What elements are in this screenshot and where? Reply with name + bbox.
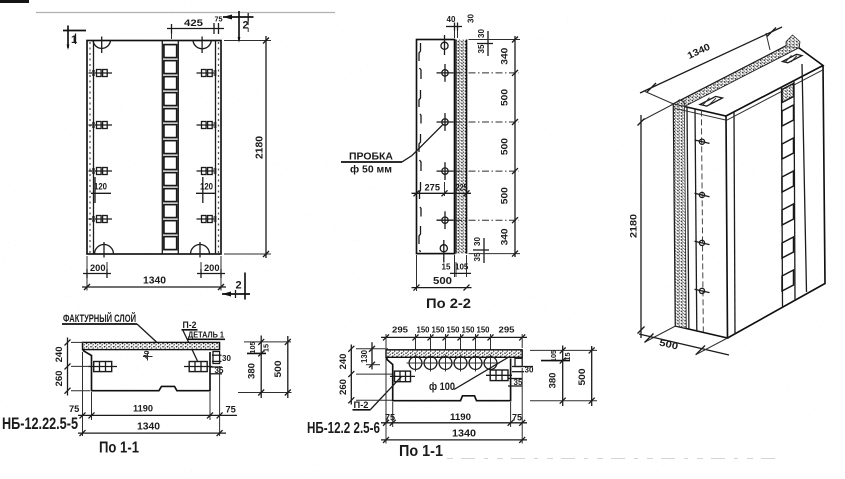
svg-text:150: 150 xyxy=(477,326,491,335)
svg-text:30: 30 xyxy=(222,354,231,363)
svg-text:1340: 1340 xyxy=(452,428,476,440)
svg-text:240: 240 xyxy=(338,354,348,370)
svg-text:30: 30 xyxy=(525,366,534,375)
svg-text:130: 130 xyxy=(359,350,369,363)
svg-text:120: 120 xyxy=(94,182,107,192)
svg-text:260: 260 xyxy=(54,371,64,387)
svg-text:НБ-12.2 2.5-6: НБ-12.2 2.5-6 xyxy=(307,420,380,437)
svg-text:295: 295 xyxy=(392,326,409,335)
svg-text:По 2-2: По 2-2 xyxy=(426,295,471,311)
svg-text:500: 500 xyxy=(500,187,511,204)
svg-text:НБ-12.22.5-5: НБ-12.22.5-5 xyxy=(2,415,78,433)
svg-text:75: 75 xyxy=(226,405,236,415)
svg-text:380: 380 xyxy=(548,373,558,389)
svg-text:500: 500 xyxy=(500,89,511,106)
svg-text:П-2: П-2 xyxy=(183,320,197,330)
svg-text:15: 15 xyxy=(262,344,271,352)
svg-text:75: 75 xyxy=(512,413,522,423)
svg-text:15: 15 xyxy=(442,263,451,272)
svg-text:2180: 2180 xyxy=(629,214,640,238)
svg-text:275: 275 xyxy=(425,182,441,192)
svg-text:2: 2 xyxy=(236,280,242,292)
svg-text:1: 1 xyxy=(71,34,77,46)
svg-text:105: 105 xyxy=(549,350,558,362)
svg-text:ф 100: ф 100 xyxy=(429,381,455,393)
svg-text:1340: 1340 xyxy=(143,275,166,287)
svg-text:75: 75 xyxy=(69,404,79,414)
svg-text:75: 75 xyxy=(385,412,395,422)
svg-text:30: 30 xyxy=(467,14,476,23)
svg-text:150: 150 xyxy=(462,326,476,335)
svg-text:1340: 1340 xyxy=(137,421,160,433)
svg-text:200: 200 xyxy=(204,263,220,273)
svg-text:500: 500 xyxy=(577,369,588,386)
svg-text:ФАКТУРНЫЙ СЛОЙ: ФАКТУРНЫЙ СЛОЙ xyxy=(63,312,136,325)
svg-text:380: 380 xyxy=(247,363,257,379)
svg-text:150: 150 xyxy=(447,326,461,335)
svg-text:ПРОБКА: ПРОБКА xyxy=(349,151,393,163)
svg-text:340: 340 xyxy=(500,228,511,245)
svg-text:30: 30 xyxy=(473,237,482,246)
svg-text:35: 35 xyxy=(477,44,486,53)
svg-text:По 1-1: По 1-1 xyxy=(399,443,443,460)
svg-text:По 1-1: По 1-1 xyxy=(99,440,139,457)
svg-text:295: 295 xyxy=(499,326,516,335)
svg-text:1190: 1190 xyxy=(133,404,153,415)
svg-text:П-2: П-2 xyxy=(354,400,369,410)
svg-text:150: 150 xyxy=(432,326,446,335)
svg-text:500: 500 xyxy=(433,275,452,287)
svg-text:105: 105 xyxy=(248,342,257,354)
svg-text:2180: 2180 xyxy=(254,136,266,159)
svg-text:225: 225 xyxy=(456,182,468,192)
svg-text:ф 50 мм: ф 50 мм xyxy=(350,164,392,176)
svg-text:425: 425 xyxy=(184,18,204,29)
svg-text:1190: 1190 xyxy=(450,412,471,423)
svg-text:500: 500 xyxy=(500,138,511,155)
svg-text:35: 35 xyxy=(514,378,523,387)
svg-text:30: 30 xyxy=(477,29,486,38)
svg-text:240: 240 xyxy=(54,346,64,362)
svg-text:260: 260 xyxy=(338,379,348,395)
svg-text:40: 40 xyxy=(141,350,151,360)
svg-text:75: 75 xyxy=(215,15,223,24)
svg-text:120: 120 xyxy=(200,182,213,192)
svg-text:150: 150 xyxy=(417,326,431,335)
svg-text:200: 200 xyxy=(90,263,106,273)
svg-text:340: 340 xyxy=(500,48,511,65)
svg-text:ДЕТАЛЬ 1: ДЕТАЛЬ 1 xyxy=(188,330,224,340)
svg-text:500: 500 xyxy=(273,361,284,378)
svg-text:15: 15 xyxy=(563,352,572,360)
